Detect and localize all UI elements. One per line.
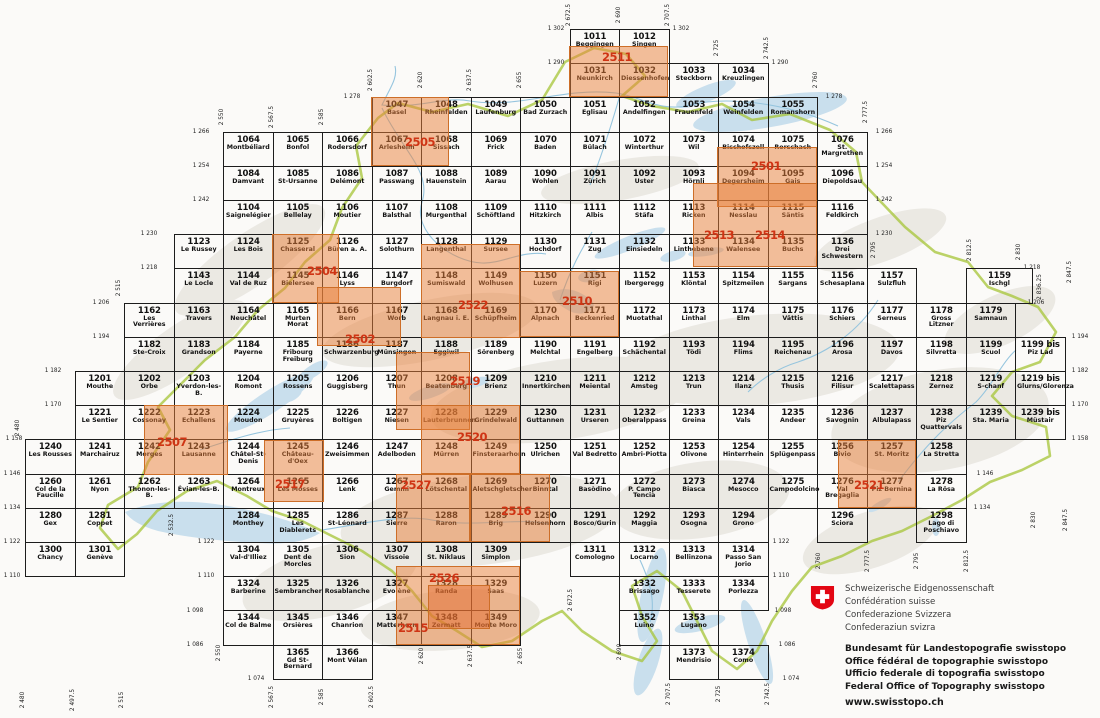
map-sheet-cell-1275[interactable]: 1275Campodolcino <box>768 474 819 509</box>
map-sheet-cell-1107[interactable]: 1107Balsthal <box>372 200 423 235</box>
sheet-name: Schesaplana <box>818 281 867 288</box>
map-sheet-cell-1144[interactable]: 1144Val de Ruz <box>223 268 274 303</box>
map-sheet-cell-1239[interactable]: 1239Sta. Maria <box>966 405 1017 440</box>
map-sheet-cell-1201[interactable]: 1201Mouthe <box>75 371 126 406</box>
map-sheet-cell-1176[interactable]: 1176Schiers <box>817 303 868 338</box>
sheet-name: Ambri-Piotta <box>620 452 669 459</box>
sheet-name: Grandson <box>175 350 224 357</box>
map-sheet-cell-1234[interactable]: 1234Vals <box>718 405 769 440</box>
map-sheet-cell-1199[interactable]: 1199Scuol <box>966 337 1017 372</box>
sheet-name: St. Niklaus <box>422 555 471 562</box>
map-sheet-cell-1333[interactable]: 1333Tesserete <box>669 576 720 611</box>
sheet-name: Basòdino <box>571 487 620 494</box>
map-sheet-cell-1214[interactable]: 1214Ilanz <box>718 371 769 406</box>
grid-coordinate-label: 1 086 <box>779 642 796 648</box>
map-sheet-cell-1263[interactable]: 1263Évian-les-B. <box>174 474 225 509</box>
sheet-name: Drei Schwestern <box>818 247 867 261</box>
map-sheet-cell-1346[interactable]: 1346Chanrion <box>322 610 373 645</box>
map-sheet-cell-1300[interactable]: 1300Chancy <box>25 542 76 577</box>
map-sheet-cell-1324[interactable]: 1324Barberine <box>223 576 274 611</box>
composite-sheet-number-2522[interactable]: 2522 <box>458 298 488 312</box>
sheet-name: Les Bois <box>224 247 273 254</box>
grid-coordinate-label: 2 795 <box>914 553 920 570</box>
sheet-name: Sion <box>323 555 372 562</box>
office-name-fr: Office fédéral de topographie swisstopo <box>845 656 1066 669</box>
map-sheet-cell-1344[interactable]: 1344Col de Balme <box>223 610 274 645</box>
sheet-name: Murten Morat <box>274 316 323 330</box>
map-sheet-cell-1194[interactable]: 1194Flims <box>718 337 769 372</box>
map-sheet-cell-1241[interactable]: 1241Marchairuz <box>75 439 126 474</box>
map-sheet-cell-1131[interactable]: 1131Zug <box>570 234 621 269</box>
map-sheet-cell-1182[interactable]: 1182Ste-Croix <box>124 337 175 372</box>
map-sheet-cell-1033[interactable]: 1033Steckborn <box>669 63 720 98</box>
sheet-name: Weinfelden <box>719 110 768 117</box>
map-sheet-cell-1286[interactable]: 1286St-Léonard <box>322 508 373 543</box>
map-sheet-cell-1306[interactable]: 1306Sion <box>322 542 373 577</box>
map-sheet-cell-1096[interactable]: 1096Diepoldsau <box>817 166 868 201</box>
sheet-name: Hauenstein <box>422 179 471 186</box>
website-link[interactable]: www.swisstopo.ch <box>845 697 944 708</box>
map-sheet-cell-1191[interactable]: 1191Engelberg <box>570 337 621 372</box>
composite-sheet-number-2501[interactable]: 2501 <box>751 159 781 173</box>
grid-coordinate-label: 2 567.5 <box>269 686 275 708</box>
map-sheet-cell-1294[interactable]: 1294Grono <box>718 508 769 543</box>
map-sheet-cell-1051[interactable]: 1051Eglisau <box>570 97 621 132</box>
map-sheet-cell-1157[interactable]: 1157Sulzfluh <box>867 268 918 303</box>
map-sheet-cell-1325[interactable]: 1325Sembrancher <box>273 576 324 611</box>
grid-coordinate-label: 1 110 <box>4 573 21 579</box>
map-sheet-cell-1311[interactable]: 1311Comologno <box>570 542 621 577</box>
sheet-name: Amsteg <box>620 384 669 391</box>
sheet-name: Balsthal <box>373 213 422 220</box>
map-sheet-cell-1165[interactable]: 1165Murten Morat <box>273 303 324 338</box>
composite-sheet-number-2507[interactable]: 2507 <box>157 435 187 449</box>
composite-sheet-number-2505[interactable]: 2505 <box>405 135 435 149</box>
map-sheet-cell-1088[interactable]: 1088Hauenstein <box>421 166 472 201</box>
map-sheet-cell-1199-bis[interactable]: 1199 bisPiz Lad <box>1015 337 1066 372</box>
sheet-name: Locarno <box>620 555 669 562</box>
map-sheet-cell-1237[interactable]: 1237Albulapass <box>867 405 918 440</box>
composite-sheet-overlay-2521[interactable] <box>838 440 916 508</box>
grid-coordinate-label: 2 585 <box>319 689 325 706</box>
composite-sheet-number-2514[interactable]: 2514 <box>755 228 785 242</box>
map-sheet-cell-1196[interactable]: 1196Arosa <box>817 337 868 372</box>
grid-coordinate-label: 2 532.5 <box>169 514 175 536</box>
map-sheet-cell-1064[interactable]: 1064Montbéliard <box>223 132 274 167</box>
map-sheet-cell-1050[interactable]: 1050Bad Zurzach <box>520 97 571 132</box>
map-sheet-cell-1216[interactable]: 1216Filisur <box>817 371 868 406</box>
map-sheet-cell-1312[interactable]: 1312Locarno <box>619 542 670 577</box>
composite-sheet-number-2527[interactable]: 2527 <box>401 478 431 492</box>
map-sheet-cell-1305[interactable]: 1305Dent de Morcles <box>273 542 324 577</box>
map-sheet-cell-1183[interactable]: 1183Grandson <box>174 337 225 372</box>
sheet-name: Barberine <box>224 589 273 596</box>
map-sheet-cell-1334[interactable]: 1334Porlezza <box>718 576 769 611</box>
sheet-name: Hochdorf <box>521 247 570 254</box>
map-sheet-cell-1301[interactable]: 1301Genève <box>75 542 126 577</box>
composite-sheet-number-2504[interactable]: 2504 <box>307 264 337 278</box>
map-sheet-cell-1179[interactable]: 1179Samnaun <box>966 303 1017 338</box>
map-sheet-cell-1213[interactable]: 1213Trun <box>669 371 720 406</box>
sheet-name: Boltigen <box>323 418 372 425</box>
map-sheet-cell-1127[interactable]: 1127Solothurn <box>372 234 423 269</box>
sheet-name: Meiental <box>571 384 620 391</box>
sheet-name: Bad Zurzach <box>521 110 570 117</box>
map-sheet-cell-1226[interactable]: 1226Boltigen <box>322 405 373 440</box>
map-sheet-cell-1224[interactable]: 1224Moudon <box>223 405 274 440</box>
map-sheet-cell-1326[interactable]: 1326Rosablanche <box>322 576 373 611</box>
composite-sheet-number-2502[interactable]: 2502 <box>345 332 375 346</box>
map-sheet-cell-1251[interactable]: 1251Val Bedretto <box>570 439 621 474</box>
federal-header-rm: Confederaziun svizra <box>845 622 994 635</box>
map-sheet-cell-1092[interactable]: 1092Uster <box>619 166 670 201</box>
map-sheet-cell-1164[interactable]: 1164Neuchâtel <box>223 303 274 338</box>
composite-sheet-number-2511[interactable]: 2511 <box>602 50 632 64</box>
map-sheet-cell-1192[interactable]: 1192Schächental <box>619 337 670 372</box>
map-sheet-cell-1236[interactable]: 1236Savognin <box>817 405 868 440</box>
sheet-name: Andelfingen <box>620 110 669 117</box>
grid-coordinate-label: 2 480 <box>15 420 21 437</box>
grid-coordinate-label: 1 182 <box>1072 368 1089 374</box>
map-sheet-cell-1173[interactable]: 1173Linthal <box>669 303 720 338</box>
map-sheet-cell-1066[interactable]: 1066Rodersdorf <box>322 132 373 167</box>
map-sheet-cell-1156[interactable]: 1156Schesaplana <box>817 268 868 303</box>
map-sheet-cell-1204[interactable]: 1204Romont <box>223 371 274 406</box>
map-sheet-cell-1185[interactable]: 1185Fribourg Freiburg <box>273 337 324 372</box>
map-sheet-cell-1112[interactable]: 1112Stäfa <box>619 200 670 235</box>
sheet-name: Guggisberg <box>323 384 372 391</box>
map-sheet-cell-1230[interactable]: 1230Guttannen <box>520 405 571 440</box>
sheet-name: Müstair <box>1016 418 1065 425</box>
sheet-name: Frauenfeld <box>670 110 719 117</box>
sheet-name: Les Rousses <box>26 452 75 459</box>
grid-coordinate-label: 1 158 <box>1072 436 1089 442</box>
sheet-name: Gruyères <box>274 418 323 425</box>
map-sheet-cell-1254[interactable]: 1254Hinterrhein <box>718 439 769 474</box>
grid-coordinate-label: 1 254 <box>193 163 210 169</box>
map-sheet-cell-1109[interactable]: 1109Schöftland <box>471 200 522 235</box>
sheet-name: Sembrancher <box>274 589 323 596</box>
map-sheet-cell-1202[interactable]: 1202Orbe <box>124 371 175 406</box>
composite-sheet-overlay-2522[interactable] <box>421 244 520 338</box>
map-sheet-cell-1274[interactable]: 1274Mesocco <box>718 474 769 509</box>
sheet-name: S-chanf <box>967 384 1016 391</box>
grid-coordinate-label: 2 777.5 <box>865 550 871 572</box>
map-sheet-cell-1247[interactable]: 1247Adelboden <box>372 439 423 474</box>
map-sheet-cell-1272[interactable]: 1272P. Campo Tencia <box>619 474 670 509</box>
sheet-name: Guttannen <box>521 418 570 425</box>
map-sheet-cell-1232[interactable]: 1232Oberalppass <box>619 405 670 440</box>
map-sheet-cell-1198[interactable]: 1198Silvretta <box>916 337 967 372</box>
sheet-name: Luino <box>620 623 669 630</box>
map-sheet-cell-1189[interactable]: 1189Sörenberg <box>471 337 522 372</box>
sheet-name: Ibergeregg <box>620 281 669 288</box>
map-sheet-cell-1280[interactable]: 1280Gex <box>25 508 76 543</box>
sheet-name: Passo San Jorio <box>719 555 768 569</box>
map-sheet-cell-1106[interactable]: 1106Moutier <box>322 200 373 235</box>
map-sheet-cell-1065[interactable]: 1065Bonfol <box>273 132 324 167</box>
composite-sheet-number-2520[interactable]: 2520 <box>457 430 487 444</box>
map-sheet-cell-1231[interactable]: 1231Urseren <box>570 405 621 440</box>
map-sheet-cell-1162[interactable]: 1162Les Verrières <box>124 303 175 338</box>
grid-coordinate-label: 2 585 <box>319 109 325 126</box>
composite-sheet-number-2516[interactable]: 2516 <box>501 504 531 518</box>
map-sheet-cell-1174[interactable]: 1174Elm <box>718 303 769 338</box>
grid-coordinate-label: 1 122 <box>4 539 21 545</box>
map-sheet-cell-1235[interactable]: 1235Andeer <box>768 405 819 440</box>
map-sheet-cell-1252[interactable]: 1252Ambri-Piotta <box>619 439 670 474</box>
map-sheet-cell-1353[interactable]: 1353Lugano <box>669 610 720 645</box>
map-sheet-cell-1352[interactable]: 1352Luino <box>619 610 670 645</box>
sheet-name: Sciora <box>818 521 867 528</box>
map-sheet-cell-1261[interactable]: 1261Nyon <box>75 474 126 509</box>
map-sheet-cell-1155[interactable]: 1155Sargans <box>768 268 819 303</box>
grid-coordinate-label: 2 707.5 <box>665 4 671 26</box>
grid-coordinate-label: 2 655 <box>517 72 523 89</box>
grid-coordinate-label: 2 620 <box>418 72 424 89</box>
sheet-name: Payerne <box>224 350 273 357</box>
sheet-name: Frick <box>472 145 521 152</box>
grid-coordinate-label: 2 672.5 <box>568 589 574 611</box>
grid-coordinate-label: 2 777.5 <box>863 101 869 123</box>
map-sheet-cell-1197[interactable]: 1197Davos <box>867 337 918 372</box>
sheet-name: Campodolcino <box>769 487 818 494</box>
map-sheet-cell-1053[interactable]: 1053Frauenfeld <box>669 97 720 132</box>
grid-coordinate-label: 2 497.5 <box>70 689 76 711</box>
sheet-name: Serneus <box>868 316 917 323</box>
sheet-name: Muotathal <box>620 316 669 323</box>
sheet-name: Murgenthal <box>422 213 471 220</box>
composite-sheet-overlay-2517[interactable] <box>264 440 324 502</box>
map-sheet-cell-1262[interactable]: 1262Thonon-les-B. <box>124 474 175 509</box>
map-sheet-cell-1163[interactable]: 1163Travers <box>174 303 225 338</box>
composite-sheet-number-2521[interactable]: 2521 <box>854 478 884 492</box>
map-sheet-cell-1203[interactable]: 1203Yverdon-les-B. <box>174 371 225 406</box>
map-sheet-cell-1177[interactable]: 1177Serneus <box>867 303 918 338</box>
map-sheet-cell-1258[interactable]: 1258La Stretta <box>916 439 967 474</box>
map-sheet-cell-1090[interactable]: 1090Wohlen <box>520 166 571 201</box>
sheet-name: Col de Balme <box>224 623 273 630</box>
sheet-name: Chanrion <box>323 623 372 630</box>
map-sheet-cell-1246[interactable]: 1246Zweisimmen <box>322 439 373 474</box>
sheet-name: Schiers <box>818 316 867 323</box>
sheet-name: Trun <box>670 384 719 391</box>
map-sheet-cell-1332[interactable]: 1332Brissago <box>619 576 670 611</box>
grid-coordinate-label: 2 620 <box>419 648 425 665</box>
map-sheet-cell-1255[interactable]: 1255Splügenpass <box>768 439 819 474</box>
map-sheet-cell-1175[interactable]: 1175Vättis <box>768 303 819 338</box>
grid-coordinate-label: 2 830 <box>1016 244 1022 261</box>
grid-coordinate-label: 1 206 <box>1028 300 1045 306</box>
grid-coordinate-label: 2 637.5 <box>467 69 473 91</box>
map-sheet-cell-1034[interactable]: 1034Kreuzlingen <box>718 63 769 98</box>
map-sheet-cell-1116[interactable]: 1116Feldkirch <box>817 200 868 235</box>
federal-header-de: Schweizerische Eidgenossenschaft <box>845 583 994 596</box>
sheet-name: Comologno <box>571 555 620 562</box>
map-sheet-cell-1266[interactable]: 1266Lenk <box>322 474 373 509</box>
sheet-name: Solothurn <box>373 247 422 254</box>
map-sheet-cell-1054[interactable]: 1054Weinfelden <box>718 97 769 132</box>
map-sheet-cell-1296[interactable]: 1296Sciora <box>817 508 868 543</box>
map-sheet-cell-1105[interactable]: 1105Bellelay <box>273 200 324 235</box>
sheet-name: Lugano <box>670 623 719 630</box>
sheet-name: Samnaun <box>967 316 1016 323</box>
map-sheet-cell-1086[interactable]: 1086Delémont <box>322 166 373 201</box>
map-sheet-cell-1205[interactable]: 1205Rossens <box>273 371 324 406</box>
map-sheet-cell-1239-bis[interactable]: 1239 bisMüstair <box>1015 405 1066 440</box>
map-sheet-cell-1225[interactable]: 1225Gruyères <box>273 405 324 440</box>
composite-sheet-number-2519[interactable]: 2519 <box>450 374 480 388</box>
office-name-en: Federal Office of Topography swisstopo <box>845 681 1066 694</box>
map-sheet-cell-1124[interactable]: 1124Les Bois <box>223 234 274 269</box>
map-sheet-cell-1366[interactable]: 1366Mont Vélan <box>322 645 373 680</box>
map-sheet-cell-1253[interactable]: 1253Olivone <box>669 439 720 474</box>
sheet-name: Schwarzenburg <box>323 350 372 357</box>
sheet-name: Piz Quattervals <box>917 418 966 432</box>
grid-coordinate-label: 1 110 <box>198 573 215 579</box>
grid-coordinate-label: 1 230 <box>141 231 158 237</box>
sheet-name: Arosa <box>818 350 867 357</box>
grid-coordinate-label: 1 134 <box>4 505 21 511</box>
sheet-name: Ste-Croix <box>125 350 174 357</box>
map-sheet-cell-1217[interactable]: 1217Scalettapass <box>867 371 918 406</box>
map-sheet-cell-1240[interactable]: 1240Les Rousses <box>25 439 76 474</box>
map-sheet-cell-1190[interactable]: 1190Melchtal <box>520 337 571 372</box>
map-sheet-cell-1285[interactable]: 1285Les Diablerets <box>273 508 324 543</box>
map-sheet-cell-1238[interactable]: 1238Piz Quattervals <box>916 405 967 440</box>
composite-sheet-overlay-inner[interactable] <box>428 585 490 629</box>
sheet-name: Tesserete <box>670 589 719 596</box>
map-sheet-cell-1313[interactable]: 1313Bellinzona <box>669 542 720 577</box>
composite-sheet-number-2513[interactable]: 2513 <box>704 228 734 242</box>
map-sheet-cell-1210[interactable]: 1210Innertkirchen <box>520 371 571 406</box>
composite-sheet-number-2510[interactable]: 2510 <box>562 294 592 308</box>
composite-sheet-overlay-2505[interactable] <box>371 97 449 166</box>
map-sheet-cell-1073[interactable]: 1073Wil <box>669 132 720 167</box>
map-sheet-cell-1069[interactable]: 1069Frick <box>471 132 522 167</box>
sheet-name: Maggia <box>620 521 669 528</box>
grid-coordinate-label: 1 098 <box>187 608 204 614</box>
map-sheet-cell-1206[interactable]: 1206Guggisberg <box>322 371 373 406</box>
map-sheet-cell-1218[interactable]: 1218Zernez <box>916 371 967 406</box>
map-sheet-cell-1291[interactable]: 1291Bosco/Gurin <box>570 508 621 543</box>
map-sheet-cell-1211[interactable]: 1211Meiental <box>570 371 621 406</box>
map-sheet-cell-1314[interactable]: 1314Passo San Jorio <box>718 542 769 577</box>
map-sheet-cell-1104[interactable]: 1104Saignelégier <box>223 200 274 235</box>
map-sheet-cell-1110[interactable]: 1110Hitzkirch <box>520 200 571 235</box>
map-sheet-cell-1070[interactable]: 1070Baden <box>520 132 571 167</box>
map-sheet-cell-1071[interactable]: 1071Bülach <box>570 132 621 167</box>
composite-sheet-overlay-2513[interactable] <box>693 183 817 267</box>
grid-coordinate-label: 1 290 <box>548 60 565 66</box>
map-sheet-cell-1221[interactable]: 1221Le Sentier <box>75 405 126 440</box>
map-sheet-cell-1084[interactable]: 1084Damvant <box>223 166 274 201</box>
map-sheet-cell-1136[interactable]: 1136Drei Schwestern <box>817 234 868 269</box>
map-sheet-cell-1193[interactable]: 1193Tödi <box>669 337 720 372</box>
map-sheet-cell-1132[interactable]: 1132Einsiedeln <box>619 234 670 269</box>
map-sheet-cell-1219-bis[interactable]: 1219 bisGlurns/Glorenza <box>1015 371 1066 406</box>
map-sheet-cell-1087[interactable]: 1087Passwang <box>372 166 423 201</box>
map-sheet-cell-1260[interactable]: 1260Col de la Faucille <box>25 474 76 509</box>
map-sheet-cell-1178[interactable]: 1178Gross Litzner <box>916 303 967 338</box>
map-sheet-cell-1089[interactable]: 1089Aarau <box>471 166 522 201</box>
grid-coordinate-label: 2 760 <box>816 553 822 570</box>
map-sheet-cell-1108[interactable]: 1108Murgenthal <box>421 200 472 235</box>
sheet-name: Olivone <box>670 452 719 459</box>
composite-sheet-number-2515[interactable]: 2515 <box>398 621 428 635</box>
sheet-name: Orsières <box>274 623 323 630</box>
map-sheet-cell-1195[interactable]: 1195Reichenau <box>768 337 819 372</box>
map-sheet-cell-1212[interactable]: 1212Amsteg <box>619 371 670 406</box>
map-sheet-cell-1271[interactable]: 1271Basòdino <box>570 474 621 509</box>
map-sheet-cell-1365[interactable]: 1365Gd St-Bernard <box>273 645 324 680</box>
grid-coordinate-label: 1 182 <box>45 368 62 374</box>
map-sheet-cell-1172[interactable]: 1172Muotathal <box>619 303 670 338</box>
map-sheet-cell-1273[interactable]: 1273Biasca <box>669 474 720 509</box>
map-sheet-cell-1184[interactable]: 1184Payerne <box>223 337 274 372</box>
composite-sheet-number-2517[interactable]: 2517 <box>275 477 305 491</box>
map-sheet-cell-1072[interactable]: 1072Winterthur <box>619 132 670 167</box>
sheet-name: Gex <box>26 521 75 528</box>
grid-coordinate-label: 2 725 <box>714 40 720 57</box>
grid-coordinate-label: 1 266 <box>193 129 210 135</box>
map-sheet-cell-1304[interactable]: 1304Val-d'Illiez <box>223 542 274 577</box>
map-sheet-cell-1284[interactable]: 1284Monthey <box>223 508 274 543</box>
map-sheet-cell-1250[interactable]: 1250Ulrichen <box>520 439 571 474</box>
map-sheet-cell-1123[interactable]: 1123Le Russey <box>174 234 225 269</box>
map-sheet-cell-1130[interactable]: 1130Hochdorf <box>520 234 571 269</box>
map-sheet-cell-1076[interactable]: 1076St. Margrethen <box>817 132 868 167</box>
composite-sheet-number-2526[interactable]: 2526 <box>429 571 459 585</box>
map-sheet-cell-1143[interactable]: 1143Le Locle <box>174 268 225 303</box>
sheet-name: Como <box>719 658 768 665</box>
map-sheet-cell-1154[interactable]: 1154Spitzmeilen <box>718 268 769 303</box>
map-sheet-cell-1153[interactable]: 1153Klöntal <box>669 268 720 303</box>
map-sheet-cell-1292[interactable]: 1292Maggia <box>619 508 670 543</box>
federal-header-it: Confederazione Svizzera <box>845 609 994 622</box>
map-sheet-cell-1345[interactable]: 1345Orsières <box>273 610 324 645</box>
grid-coordinate-label: 1 302 <box>673 26 690 32</box>
map-sheet-cell-1091[interactable]: 1091Zürich <box>570 166 621 201</box>
map-sheet-cell-1373[interactable]: 1373Mendrisio <box>669 645 720 680</box>
map-sheet-cell-1281[interactable]: 1281Coppet <box>75 508 126 543</box>
grid-coordinate-label: 1 074 <box>248 676 265 682</box>
map-sheet-cell-1159[interactable]: 1159Ischgl <box>966 268 1034 303</box>
map-sheet-cell-1085[interactable]: 1085St-Ursanne <box>273 166 324 201</box>
sheet-name: Bonfol <box>274 145 323 152</box>
map-sheet-cell-1298[interactable]: 1298Lago di Poschiavo <box>916 508 967 543</box>
sheet-name: Piz Lad <box>1016 350 1065 357</box>
map-sheet-cell-1293[interactable]: 1293Osogna <box>669 508 720 543</box>
map-sheet-cell-1278[interactable]: 1278La Rösa <box>916 474 967 509</box>
sheet-name: Linthal <box>670 316 719 323</box>
map-sheet-cell-1374[interactable]: 1374Como <box>718 645 769 680</box>
sheet-name: Oberalppass <box>620 418 669 425</box>
map-sheet-cell-1215[interactable]: 1215Thusis <box>768 371 819 406</box>
map-sheet-cell-1219[interactable]: 1219S-chanf <box>966 371 1017 406</box>
map-sheet-cell-1233[interactable]: 1233Greina <box>669 405 720 440</box>
map-sheet-cell-1055[interactable]: 1055Romanshorn <box>768 97 819 132</box>
sheet-name: Travers <box>175 316 224 323</box>
sheet-name: Albis <box>571 213 620 220</box>
grid-coordinate-label: 2 760 <box>813 72 819 89</box>
map-sheet-cell-1111[interactable]: 1111Albis <box>570 200 621 235</box>
map-sheet-cell-1052[interactable]: 1052Andelfingen <box>619 97 670 132</box>
map-sheet-cell-1152[interactable]: 1152Ibergeregg <box>619 268 670 303</box>
sheet-name: Silvretta <box>917 350 966 357</box>
sheet-name: Le Sentier <box>76 418 125 425</box>
map-sheet-cell-1049[interactable]: 1049Laufenburg <box>471 97 522 132</box>
